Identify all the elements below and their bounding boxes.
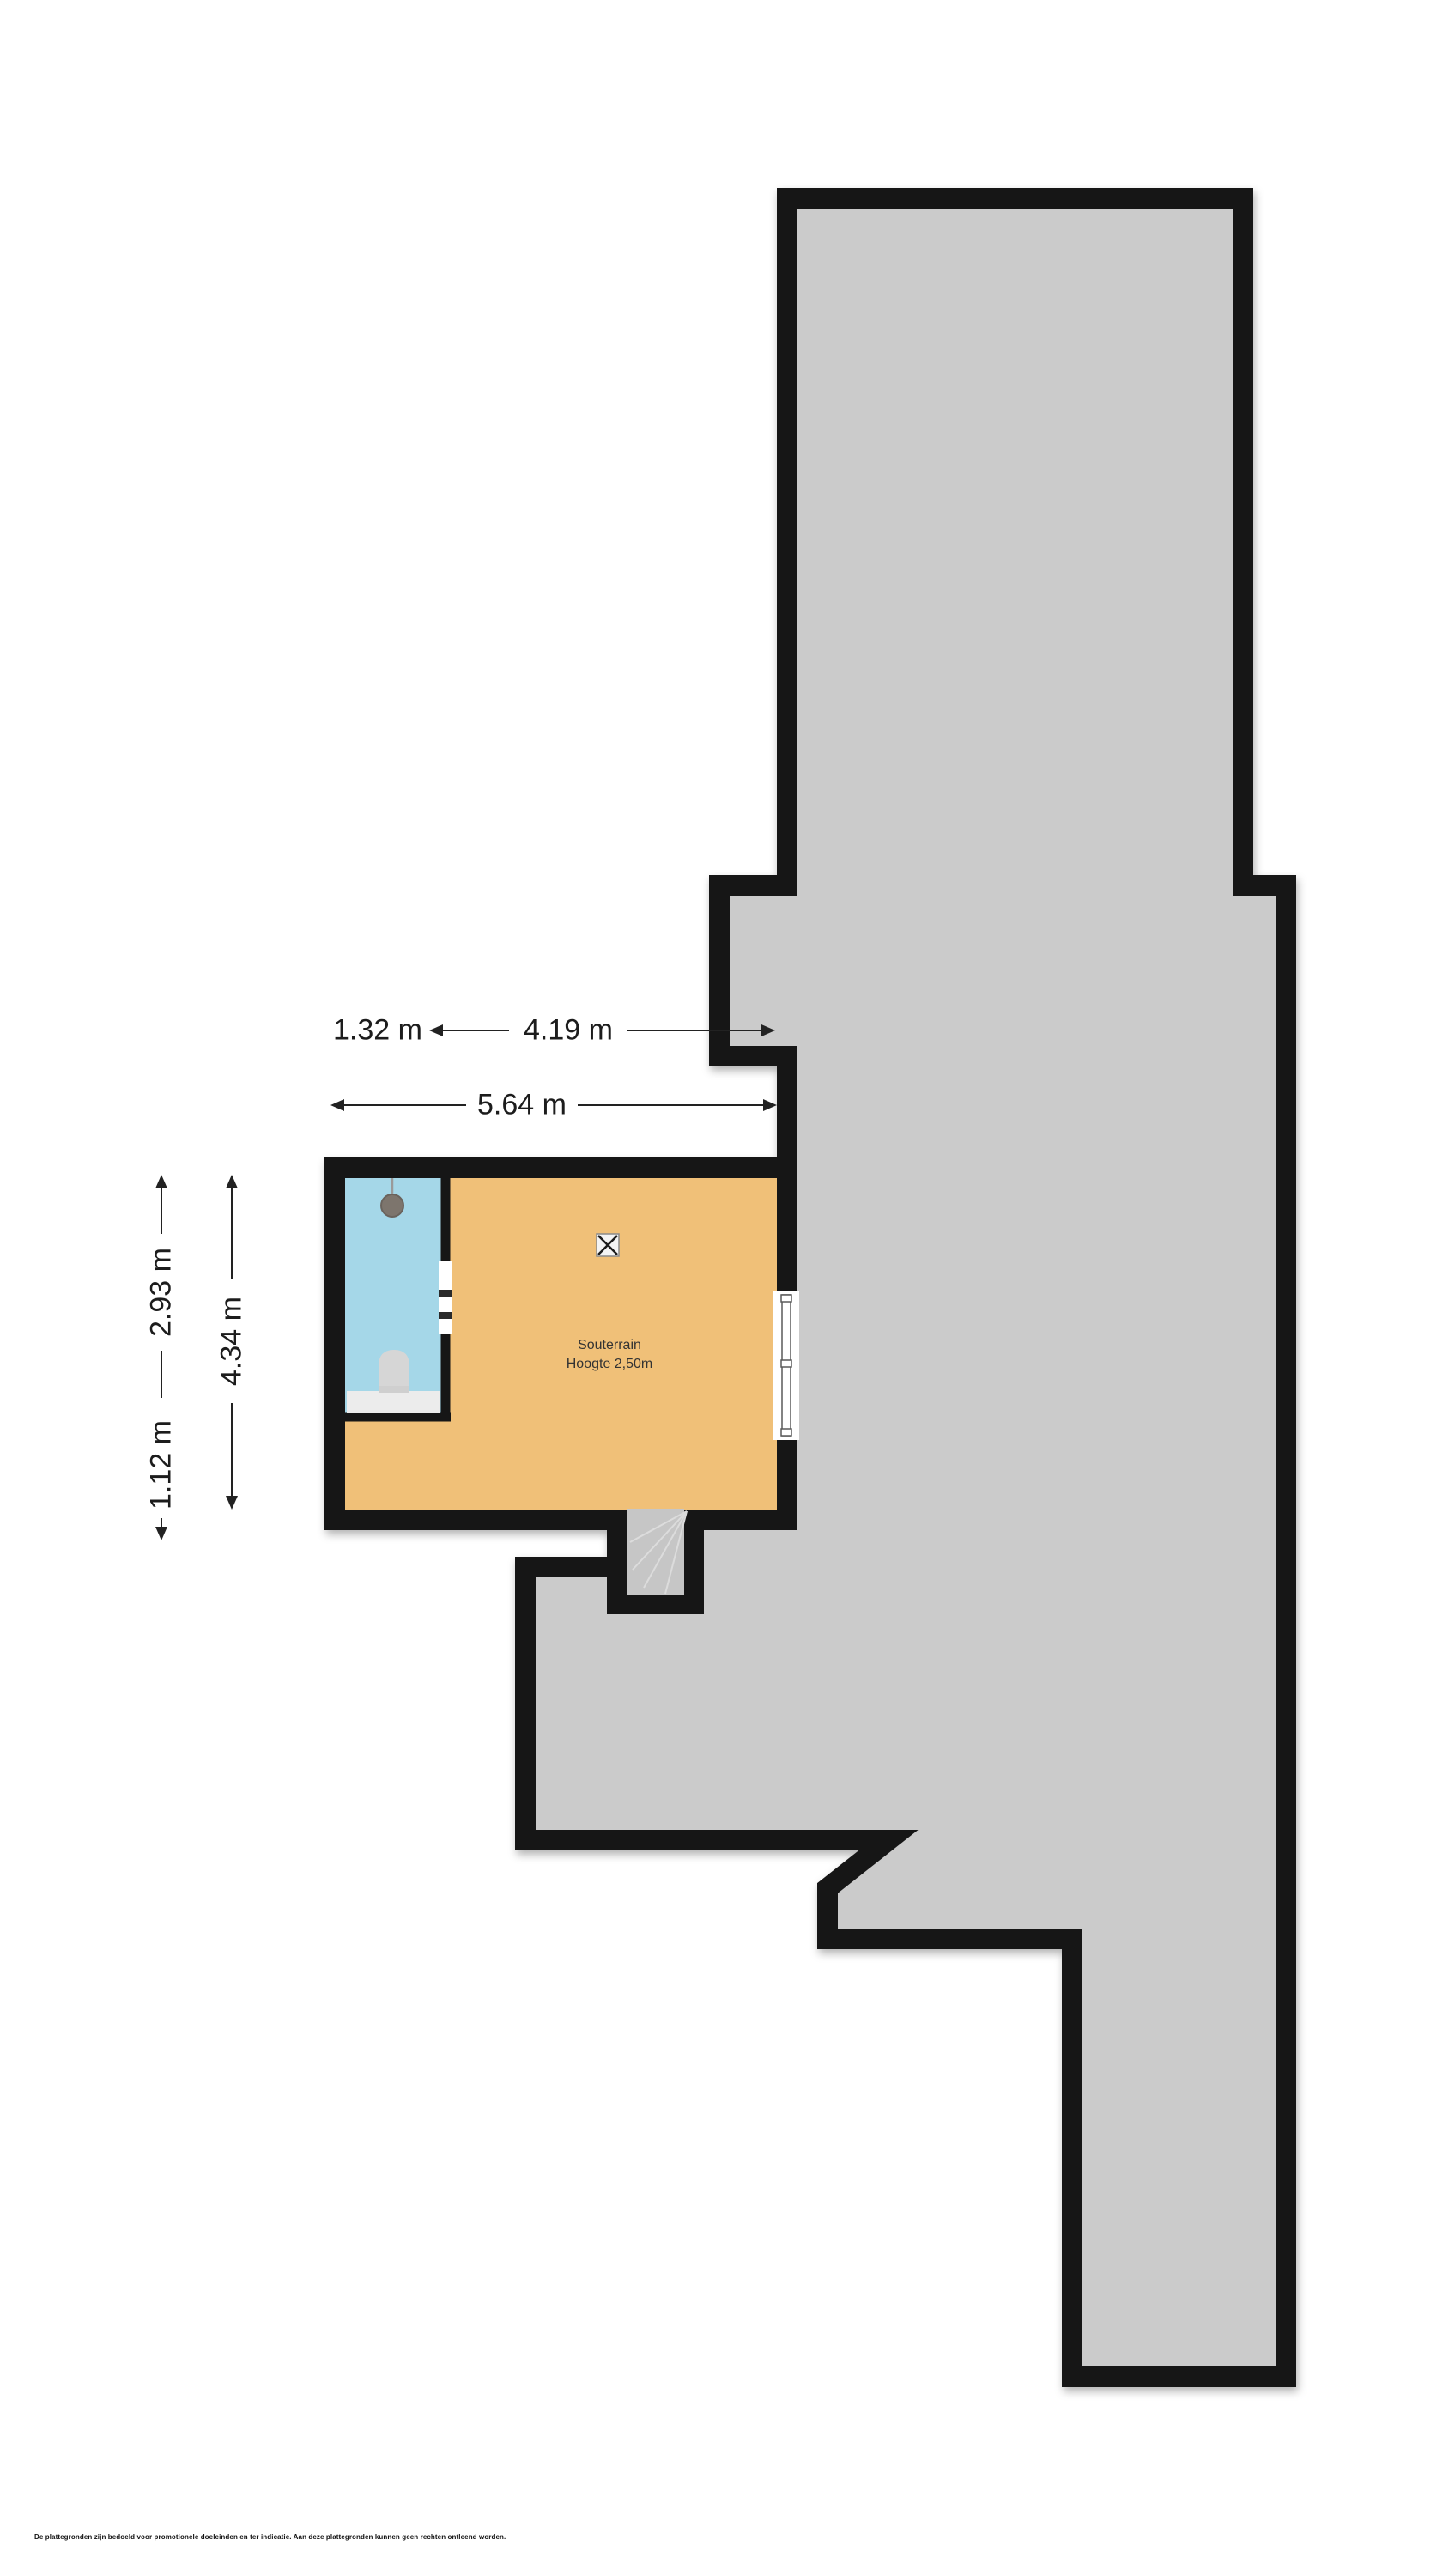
disclaimer-text: De plattegronden zijn bedoeld voor promo… — [34, 2533, 506, 2541]
room-height-note: Hoogte 2,50m — [567, 1355, 653, 1374]
dimension-label-left-lower: 1.12 m — [145, 1420, 179, 1510]
arrow-left-icon — [429, 1024, 443, 1036]
dimension-label-total-width: 5.64 m — [477, 1089, 567, 1122]
dimension-label-top-offset: 1.32 m — [333, 1014, 422, 1048]
floorplan-stage: 1.32 m 4.19 m 5.64 m 2.93 m 1.12 m 4.34 … — [0, 0, 1449, 2576]
dimension-label-top-inner-width: 4.19 m — [524, 1014, 613, 1048]
door-opening — [439, 1261, 452, 1334]
arrow-up-icon — [155, 1175, 167, 1188]
arrow-down-icon — [226, 1496, 238, 1510]
dimension-label-left-total: 4.34 m — [215, 1297, 249, 1386]
vent-symbol-icon — [597, 1234, 619, 1256]
floorplan-drawing — [0, 0, 1449, 2576]
arrow-down-icon — [155, 1527, 167, 1540]
arrow-up-icon — [226, 1175, 238, 1188]
arrow-left-icon — [330, 1099, 344, 1111]
room-name: Souterrain — [567, 1336, 653, 1355]
arrow-right-icon — [763, 1099, 777, 1111]
floorplan-page: { "floorplan": { "rooms": { "souterrain"… — [0, 0, 1449, 2576]
window-icon — [773, 1291, 799, 1440]
dimension-label-left-upper: 2.93 m — [145, 1248, 179, 1337]
bathroom — [340, 1178, 452, 1421]
room-label-souterrain: Souterrain Hoogte 2,50m — [567, 1336, 653, 1374]
